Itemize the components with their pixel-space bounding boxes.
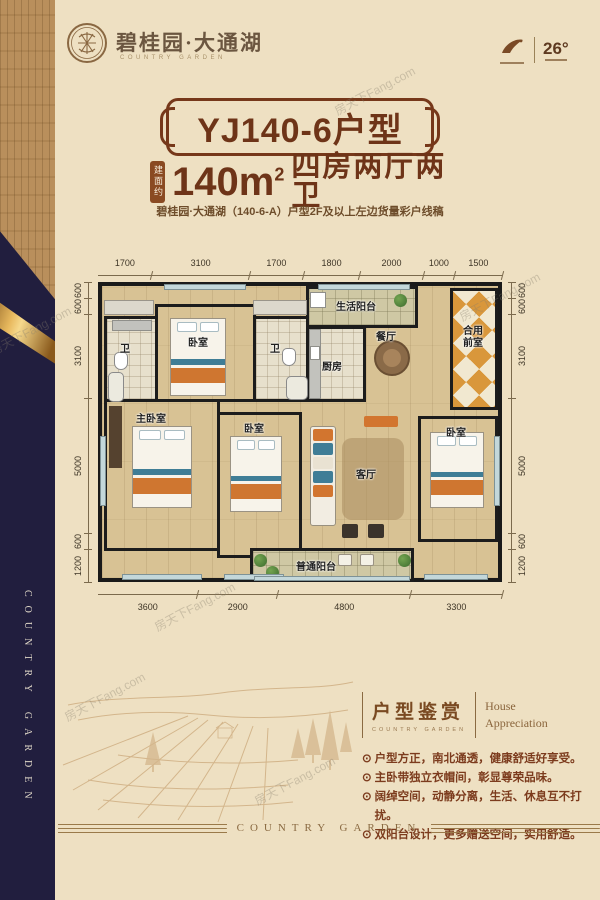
ac-platform [104, 300, 154, 315]
brand-tagline: COUNTRY GARDEN [120, 55, 226, 61]
appreciation-header: 户型鉴赏 COUNTRY GARDEN House Appreciation [362, 692, 598, 738]
label-bedroom-3: 卧室 [446, 424, 466, 439]
footer-rule-right [431, 824, 600, 833]
dim-value: 600 [517, 534, 527, 549]
window [494, 436, 500, 506]
area-value: 140m [172, 160, 274, 204]
dimensions-right: 600 600 3100 5000 600 1200 [510, 282, 534, 582]
kitchen-counter [309, 329, 321, 399]
dim-value: 1800 [322, 258, 342, 268]
temperature-mark: 26° [543, 40, 569, 61]
armchair [368, 524, 384, 538]
dim-value: 600 [73, 534, 83, 549]
header-right-logos: 26° [498, 32, 594, 68]
bed-bedroom3 [430, 432, 484, 508]
unit-title: YJ140-6户型 [197, 103, 403, 152]
brand-seal-icon [66, 22, 108, 64]
selling-point: ⊙主卧带独立衣帽间，彰显尊荣品味。 [362, 769, 598, 788]
shower [286, 376, 308, 400]
bullet-text: 阔绰空间，动静分离，生活、休息互不打扰。 [375, 788, 598, 826]
window [122, 574, 202, 580]
dim-value: 1700 [115, 258, 135, 268]
dim-value: 3300 [446, 602, 466, 612]
selling-point: ⊙阔绰空间，动静分离，生活、休息互不打扰。 [362, 788, 598, 826]
plant [398, 554, 411, 567]
label-life-balcony: 生活阳台 [336, 298, 376, 313]
phoenix-logo-icon [498, 37, 526, 64]
dimensions-top: 1700 3100 1700 1800 2000 1000 1500 [98, 256, 502, 278]
label-bathroom-1: 卫 [120, 340, 130, 355]
selling-point: ⊙户型方正，南北通透，健康舒适好享受。 [362, 750, 598, 769]
logo-divider [534, 37, 535, 63]
sofa [310, 426, 336, 526]
plant [254, 554, 267, 567]
label-master: 主卧室 [136, 410, 166, 425]
dim-value: 1000 [429, 258, 449, 268]
dim-value: 1700 [266, 258, 286, 268]
poster-page: COUNTRY GARDEN 碧桂园·大通湖 COUNTRY GARDEN 26… [0, 0, 600, 900]
appreciation-title-en: House Appreciation [485, 698, 548, 732]
dim-value: 1500 [468, 258, 488, 268]
ac-platform [253, 300, 307, 315]
bed-bedroom-top [170, 318, 226, 396]
label-lobby: 合用前室 [460, 326, 486, 349]
plan-subtitle: 碧桂园·大通湖（140-6-A）户型2F及以上左边货量彩户线稿 [156, 203, 443, 219]
dim-value: 3100 [73, 346, 83, 366]
area-badge: 建面约 [150, 161, 165, 203]
label-living: 客厅 [356, 466, 376, 481]
dim-value: 3600 [138, 602, 158, 612]
kitchen-sink [310, 346, 320, 360]
footer-rule-left [58, 824, 227, 833]
footer-brand-text: COUNTRY GARDEN [237, 822, 422, 834]
appreciation-title: 户型鉴赏 [372, 697, 466, 724]
divider-bar [475, 692, 476, 738]
bed-master [132, 426, 192, 508]
divider-bar [362, 692, 363, 738]
bullet-text: 主卧带独立衣帽间，彰显尊荣品味。 [375, 769, 559, 788]
label-dining: 餐厅 [376, 328, 396, 343]
toilet [282, 348, 296, 366]
bed-bedroom2 [230, 436, 282, 512]
label-bathroom-2: 卫 [270, 340, 280, 355]
area-sup: 2 [274, 165, 284, 185]
brand-name: 碧桂园·大通湖 [116, 27, 263, 57]
bathtub [108, 372, 124, 402]
dim-value: 3100 [517, 346, 527, 366]
dim-value: 1200 [73, 556, 83, 576]
bullet-text: 户型方正，南北通透，健康舒适好享受。 [375, 750, 582, 769]
window [164, 284, 246, 290]
label-kitchen: 厨房 [322, 358, 342, 373]
appreciation-en2: Appreciation [485, 715, 548, 732]
bullet-icon: ⊙ [362, 788, 372, 826]
appreciation-en1: House [485, 698, 548, 715]
banner-vertical-text: COUNTRY GARDEN [22, 590, 33, 808]
appreciation-subtitle: COUNTRY GARDEN [372, 727, 466, 733]
label-bedroom-top: 卧室 [188, 334, 208, 349]
dimensions-bottom: 3600 2900 4800 3300 [98, 592, 502, 614]
dim-value: 600 [517, 299, 527, 314]
dimensions-left: 600 600 3100 5000 600 1200 [66, 282, 90, 582]
bullet-icon: ⊙ [362, 769, 372, 788]
dim-value: 600 [73, 299, 83, 314]
footer: COUNTRY GARDEN [58, 822, 600, 834]
bullet-icon: ⊙ [362, 750, 372, 769]
temperature-value: 26° [543, 40, 569, 57]
console-table [364, 416, 398, 427]
dim-value: 5000 [517, 456, 527, 476]
window [318, 284, 410, 290]
logo-caption-bar [500, 62, 524, 64]
area-size: 140m2 [172, 162, 284, 202]
balcony-chair [338, 554, 352, 566]
dim-value: 5000 [73, 456, 83, 476]
wardrobe [109, 406, 122, 468]
wood-texture-band [0, 0, 55, 340]
dim-value: 4800 [334, 602, 354, 612]
label-bedroom-2: 卧室 [244, 420, 264, 435]
balcony-railing [254, 576, 410, 581]
left-banner: COUNTRY GARDEN [0, 0, 55, 900]
temp-caption-bar [545, 59, 567, 61]
window [424, 574, 488, 580]
window [100, 436, 106, 506]
vineyard-sketch [58, 660, 358, 830]
vanity [112, 320, 152, 331]
dim-value: 600 [73, 283, 83, 298]
unit-title-frame: YJ140-6户型 [166, 98, 434, 156]
label-balcony: 普通阳台 [296, 558, 336, 573]
dining-table [374, 340, 410, 376]
dim-value: 2900 [228, 602, 248, 612]
washer [310, 292, 326, 308]
armchair [342, 524, 358, 538]
balcony-chair [360, 554, 374, 566]
dim-value: 3100 [191, 258, 211, 268]
dim-value: 2000 [382, 258, 402, 268]
plant [394, 294, 407, 307]
dim-value: 1200 [517, 556, 527, 576]
floor-plan: 卫 卧室 卫 厨房 生活阳台 餐厅 合用前室 主卧室 卧室 客厅 卧室 普通阳台 [98, 282, 502, 582]
